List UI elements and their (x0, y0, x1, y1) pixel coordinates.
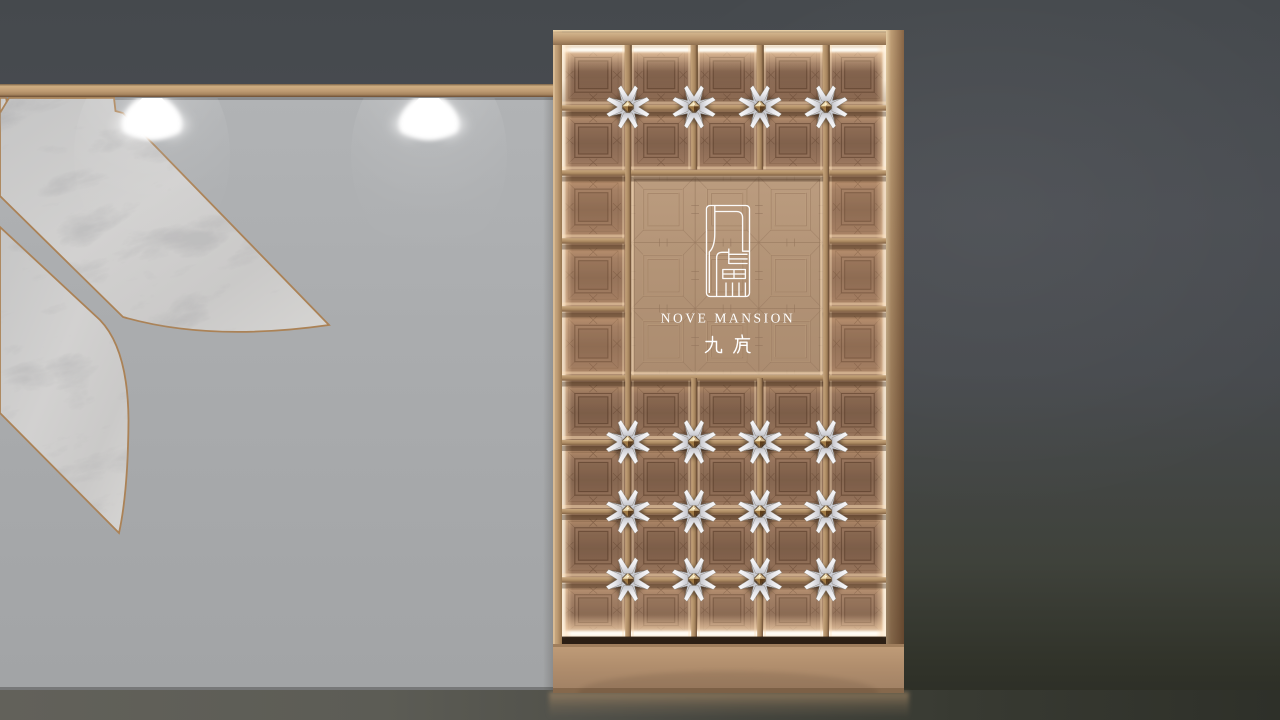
svg-text:NOVE MANSION: NOVE MANSION (661, 311, 795, 326)
